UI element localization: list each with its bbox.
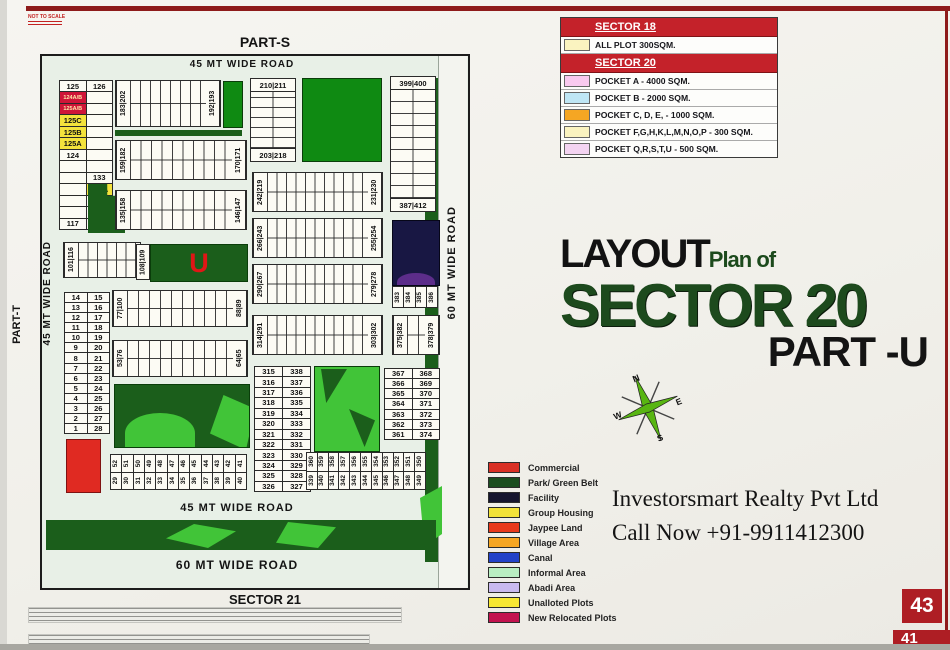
- plot-number: 30: [124, 477, 131, 484]
- company-name: Investorsmart Realty Pvt Ltd: [612, 486, 878, 512]
- legend-item-label: Informal Area: [528, 568, 586, 578]
- plot-number-cell: 19: [87, 333, 110, 342]
- plot-number-cell: 28: [87, 424, 110, 433]
- plot-number-cell: 352: [394, 453, 404, 471]
- legend-color-swatch: [488, 552, 520, 563]
- plot-pair-row: 125B: [60, 126, 112, 137]
- plot-number-cell: 42: [224, 455, 234, 472]
- strip-314-right-label: 303|302: [368, 316, 382, 354]
- plot-column: 4140: [235, 455, 246, 489]
- legend-item: Informal Area: [488, 565, 638, 580]
- plot-number-cell: 342: [339, 471, 349, 490]
- plot-number-cell: 322: [255, 440, 282, 449]
- plot-cells: [407, 316, 425, 354]
- plot-number: 33: [158, 477, 165, 484]
- plot-number-cell: 126: [86, 81, 113, 91]
- plot-cells: [130, 81, 206, 126]
- plot-number-cell: 125A: [60, 138, 86, 148]
- plot-cells: [267, 219, 368, 257]
- plot-number-cell: 133: [86, 173, 113, 183]
- legend-item-label: Canal: [528, 553, 553, 563]
- plot-number-cell: 344: [361, 471, 371, 490]
- plot-pair-row: 920: [65, 342, 109, 352]
- facility-accent: [397, 273, 435, 286]
- plot-number-cell: 320: [255, 419, 282, 428]
- plot-column: 4536: [189, 455, 200, 489]
- facility-block: [392, 220, 440, 286]
- part-s-label: PART-S: [205, 34, 325, 50]
- plot-pair-row: 821: [65, 352, 109, 362]
- plot-number-cell: 368: [412, 369, 440, 378]
- road-45-bottom-label: 45 MT WIDE ROAD: [72, 502, 402, 514]
- plot-number: 342: [341, 475, 348, 486]
- plot-pair-row: 326327: [255, 481, 310, 491]
- watermark-shape: [210, 395, 250, 448]
- strip-314-left-label: 314|291: [253, 316, 267, 354]
- plot-number-cell: 124A/B: [60, 92, 86, 102]
- plot-column: 4833: [155, 455, 166, 489]
- plot-number-cell: [60, 207, 86, 217]
- strip-135-left-label: 135|158: [116, 191, 130, 229]
- plot-column: 359340: [317, 453, 328, 489]
- plot-number-cell: 354: [372, 453, 382, 471]
- plot-column: 4734: [167, 455, 178, 489]
- plot-strip-219-242: 242|219 231|230: [252, 172, 383, 212]
- plot-number: 45: [192, 460, 199, 467]
- plot-number: 46: [181, 460, 188, 467]
- plot-number: 43: [215, 460, 222, 467]
- plot-number-cell: 29: [111, 472, 121, 490]
- plot-number-cell: 46: [179, 455, 189, 472]
- plot-number-cell: 31: [134, 472, 144, 490]
- legend-color-swatch: [488, 567, 520, 578]
- page-number: 43: [910, 594, 933, 618]
- strip-53-left-label: 53|76: [113, 341, 127, 376]
- block-210-bottom-label: 203|218: [251, 148, 295, 161]
- plot-number: 356: [352, 456, 359, 467]
- plot-number-cell: 323: [255, 450, 282, 459]
- plot-column: 5031: [133, 455, 144, 489]
- plot-pair-row: 361374: [385, 429, 439, 439]
- plot-number-cell: 25: [87, 394, 110, 403]
- plot-number: 359: [319, 456, 326, 467]
- plot-strip-159-182: 159|182 170|171: [115, 140, 247, 180]
- plot-strip-29-52: 5229513050314932483347344635453644374338…: [110, 454, 247, 490]
- plot-number: 51: [124, 460, 131, 467]
- plot-number: 39: [226, 477, 233, 484]
- plot-number-cell: 364: [385, 399, 412, 408]
- plot-number-cell: 333: [282, 419, 310, 428]
- plot-number-cell: 13: [65, 303, 87, 312]
- plot-block-203-218: 210|211 203|218: [250, 78, 296, 162]
- plot-cells: [267, 265, 368, 303]
- plot-number: 344: [363, 475, 370, 486]
- plot-number-cell: 318: [255, 398, 282, 407]
- legend-item-label: Park/ Green Belt: [528, 478, 598, 488]
- plot-number-cell: 27: [87, 414, 110, 423]
- legend-item: POCKET A - 4000 SQM.: [561, 73, 777, 90]
- plot-pair-row: 317336: [255, 387, 310, 397]
- plot-pair-row: 320333: [255, 418, 310, 428]
- plot-pair-row: 325328: [255, 470, 310, 480]
- road-45-left-label: 45 MT WIDE ROAD: [43, 241, 53, 345]
- plot-number-cell: 370: [412, 389, 440, 398]
- plot-number: 34: [170, 477, 177, 484]
- plot-number-cell: 317: [255, 388, 282, 397]
- plot-number: 32: [147, 477, 154, 484]
- plot-column: 353346: [382, 453, 393, 489]
- plot-pair-row: 125C: [60, 114, 112, 125]
- plot-number-cell: 373: [412, 420, 440, 429]
- plot-number: 36: [192, 477, 199, 484]
- legend-item: Commercial: [488, 460, 638, 475]
- plot-number-cell: 347: [394, 471, 404, 490]
- legend-color-swatch: [488, 612, 520, 623]
- watermark-shape: [321, 369, 347, 403]
- plot-number-cell: 372: [412, 410, 440, 419]
- legend-item-label: Abadi Area: [528, 583, 575, 593]
- plot-number-cell: [86, 138, 113, 148]
- plot-number-cell: 350: [415, 453, 425, 471]
- plot-number-cell: 357: [339, 453, 349, 471]
- plot-pair-row: 326: [65, 403, 109, 413]
- legend-color-swatch: [488, 522, 520, 533]
- plot-number-cell: 369: [412, 379, 440, 388]
- plot-number-cell: 15: [87, 293, 110, 302]
- plot-number: 347: [395, 475, 402, 486]
- park-green-belt-block: [114, 384, 250, 448]
- plot-pair-row: 322331: [255, 439, 310, 449]
- plot-number-cell: 32: [145, 472, 155, 490]
- plot-number-cell: 316: [255, 377, 282, 386]
- legend-section-header: SECTOR 20: [561, 54, 777, 73]
- title-plan-of: Plan of: [709, 247, 775, 272]
- plot-number-cell: 2: [65, 414, 87, 423]
- plot-column: 358341: [328, 453, 339, 489]
- plot-number: 29: [113, 477, 120, 484]
- plot-strip-243-266: 266|243 255|254: [252, 218, 383, 258]
- plot-block-387-412: 399|400 387|412: [390, 76, 436, 212]
- plot-number-cell: 10: [65, 333, 87, 342]
- plot-number-cell: 38: [213, 472, 223, 490]
- legend-item-label: Group Housing: [528, 508, 594, 518]
- plot-number-cell: 30: [122, 472, 132, 490]
- plot-number-cell: 351: [404, 453, 414, 471]
- strip-242-right-label: 231|230: [368, 173, 382, 211]
- plot-pair-row: 364371: [385, 398, 439, 408]
- legend-item-label: POCKET B - 2000 SQM.: [595, 93, 691, 103]
- plot-number-cell: 16: [87, 303, 110, 312]
- strip-77-right-label: 88|89: [233, 291, 247, 326]
- plot-column: 354345: [371, 453, 382, 489]
- plot-number-cell: 49: [145, 455, 155, 472]
- legend-item: Abadi Area: [488, 580, 638, 595]
- road-45-top-label: 45 MT WIDE ROAD: [82, 59, 402, 70]
- strip-290-right-label: 279|278: [368, 265, 382, 303]
- legend-color-swatch: [488, 537, 520, 548]
- plot-number-cell: [60, 184, 86, 194]
- plot-cells: [251, 92, 295, 148]
- legend-item-label: Jaypee Land: [528, 523, 583, 533]
- plot-pair-row: 316337: [255, 376, 310, 386]
- compass-n: N: [631, 373, 641, 385]
- plot-block-1-28: 1415131612171118101992082172262352442532…: [64, 292, 110, 434]
- plot-column: 352347: [393, 453, 404, 489]
- plot-block-315-338: 3153383163373173363183353193343203333213…: [254, 366, 311, 492]
- plot-number: 343: [352, 475, 359, 486]
- plot-number-cell: 36: [190, 472, 200, 490]
- plot-number-cell: 340: [318, 471, 328, 490]
- plot-number: 348: [406, 475, 413, 486]
- legend-color-swatch: [564, 39, 590, 51]
- plot-number: 41: [238, 460, 245, 467]
- plot-number-cell: 335: [282, 398, 310, 407]
- plot-pair-row: 133: [60, 172, 112, 183]
- plot-cells: [391, 90, 435, 198]
- plot-number-cell: 40: [236, 472, 246, 490]
- plot-number: 340: [319, 475, 326, 486]
- strip-183-left-label: 183|202: [116, 81, 130, 126]
- block-210-top-label: 210|211: [251, 79, 295, 92]
- plot-number-cell: 319: [255, 409, 282, 418]
- plot-number-cell: 12: [65, 313, 87, 322]
- plot-pair-row: 125A: [60, 137, 112, 148]
- plot-pair-row: 321332: [255, 429, 310, 439]
- legend-item-label: Commercial: [528, 463, 580, 473]
- strip-135-right-label: 146|147: [232, 191, 246, 229]
- plot-pair-row: 125A/B: [60, 103, 112, 114]
- plot-number-cell: 337: [282, 377, 310, 386]
- plot-column: 4635: [178, 455, 189, 489]
- legend-item-label: Unalloted Plots: [528, 598, 594, 608]
- plot-number-cell: 48: [156, 455, 166, 472]
- plot-number-cell: 51: [122, 455, 132, 472]
- plot-cells: [267, 173, 368, 211]
- plot-block-375-382: 375|382 378|379: [392, 315, 440, 355]
- legend-item-label: POCKET F,G,H,K,L,M,N,O,P - 300 SQM.: [595, 127, 753, 137]
- plot-number-cell: 18: [87, 323, 110, 332]
- plot-number: 357: [341, 456, 348, 467]
- plot-pair-row: 128: [65, 423, 109, 433]
- strip-183-right-label: 192|193: [206, 81, 220, 126]
- not-to-scale-text: NOT TO SCALE: [28, 14, 65, 20]
- plot-number-cell: 125: [60, 81, 86, 91]
- plot-number-cell: [60, 161, 86, 171]
- right-road: 60 MT WIDE ROAD: [438, 56, 467, 588]
- plot-strip-135-158: 135|158 146|147: [115, 190, 247, 230]
- watermark-shape: [166, 524, 236, 548]
- plot-number-cell: 45: [190, 455, 200, 472]
- plot-number-cell: 47: [168, 455, 178, 472]
- strip-290-left-label: 290|267: [253, 265, 267, 303]
- plot-cells: [267, 316, 368, 354]
- plot-number-cell: 4: [65, 394, 87, 403]
- plot-number-cell: 22: [87, 364, 110, 373]
- plot-cells: [130, 191, 232, 229]
- plot-pair-row: 1118: [65, 322, 109, 332]
- plot-number-cell: 5: [65, 384, 87, 393]
- plot-number-cell: 23: [87, 374, 110, 383]
- legend-color-swatch: [564, 109, 590, 121]
- plot-number-cell: 35: [179, 472, 189, 490]
- plot-number-cell: 34: [168, 472, 178, 490]
- plot-number-cell: 6: [65, 374, 87, 383]
- plot-number: 47: [170, 460, 177, 467]
- road-60-right-label: 60 MT WIDE ROAD: [447, 206, 458, 319]
- plot-number-cell: 349: [415, 471, 425, 490]
- plot-number-cell: 331: [282, 440, 310, 449]
- legend-item: Canal: [488, 550, 638, 565]
- plot-number-cell: 343: [350, 471, 360, 490]
- plot-column: 4239: [223, 455, 234, 489]
- plot-number-cell: 367: [385, 369, 412, 378]
- plot-number: 48: [158, 460, 165, 467]
- plot-number: 351: [406, 456, 413, 467]
- strip-266-right-label: 255|254: [368, 219, 382, 257]
- plot-number-cell: 125C: [60, 115, 86, 125]
- plot-strip-339-360: 3603393593403583413573423563433553443543…: [306, 452, 426, 490]
- green-square-bottom: [314, 366, 380, 452]
- plot-number-cell: [86, 161, 113, 171]
- plot-number-cell: [86, 115, 113, 125]
- plot-number: 350: [417, 456, 424, 467]
- plot-column: 4932: [144, 455, 155, 489]
- plot-number-cell: 360: [307, 453, 317, 471]
- u-block-label-cell: 108|109: [136, 244, 150, 280]
- plot-number: 354: [374, 456, 381, 467]
- plot-number: 353: [384, 456, 391, 467]
- plot-number: 341: [330, 475, 337, 486]
- plot-pair-row: 124A/B: [60, 91, 112, 102]
- plot-strip-77-100: 77|100 88|89: [112, 290, 248, 327]
- plot-386: 386: [429, 292, 436, 303]
- plot-number-cell: 44: [202, 455, 212, 472]
- plot-cells: [130, 141, 232, 179]
- strip-53-right-label: 64|65: [233, 341, 247, 376]
- plot-number-cell: 326: [255, 482, 282, 491]
- plot-number-cell: 7: [65, 364, 87, 373]
- plot-pair-row: 365370: [385, 388, 439, 398]
- plot-number: 37: [204, 477, 211, 484]
- plot-number: 49: [147, 460, 154, 467]
- plot-strip-267-290: 290|267 279|278: [252, 264, 383, 304]
- legend-section-header: SECTOR 18: [561, 18, 777, 37]
- legend-item: POCKET F,G,H,K,L,M,N,O,P - 300 SQM.: [561, 124, 777, 141]
- plot-number-cell: 365: [385, 389, 412, 398]
- facility-label-cell: 386: [426, 287, 437, 307]
- strip-77-left-label: 77|100: [113, 291, 127, 326]
- plot-pair-row: 366369: [385, 378, 439, 388]
- commercial-block: [66, 439, 101, 493]
- page-number-badge: 43: [902, 589, 942, 623]
- plot-column: 356343: [349, 453, 360, 489]
- plot-number-cell: 325: [255, 471, 282, 480]
- plot-number-cell: 374: [412, 430, 440, 439]
- plot-pair-row: 1316: [65, 302, 109, 312]
- plot-pair-row: 1217: [65, 312, 109, 322]
- plot-number-cell: 3: [65, 404, 87, 413]
- plot-number-cell: 125B: [60, 127, 86, 137]
- plot-number: 31: [136, 477, 143, 484]
- facility-label-cell: 384: [403, 287, 414, 307]
- green-plot-cell: [223, 81, 243, 128]
- plot-385: 385: [417, 292, 424, 303]
- plot-pair-row: 425: [65, 393, 109, 403]
- plot-number: 360: [309, 456, 316, 467]
- map-sheet: 45 MT WIDE ROAD 45 MT WIDE ROAD 60 MT WI…: [40, 54, 470, 590]
- plot-number-cell: 321: [255, 430, 282, 439]
- plot-column: 4437: [201, 455, 212, 489]
- plot-number-cell: 14: [65, 293, 87, 302]
- plot-number: 38: [215, 477, 222, 484]
- plot-number-cell: 39: [224, 472, 234, 490]
- sector-21-label: SECTOR 21: [200, 592, 330, 607]
- compass-e: E: [674, 396, 683, 408]
- plot-column: 351348: [403, 453, 414, 489]
- plot-number-cell: 361: [385, 430, 412, 439]
- plot-number-cell: 8: [65, 353, 87, 362]
- plot-number-cell: 24: [87, 384, 110, 393]
- bottom-scan-edge: [0, 644, 950, 650]
- plot-number: 50: [136, 460, 143, 467]
- plot-number-cell: 52: [111, 455, 121, 472]
- plot-pair-row: 362373: [385, 419, 439, 429]
- plot-pair-row: 722: [65, 363, 109, 373]
- plot-number-cell: [60, 196, 86, 206]
- plot-number-cell: 1: [65, 424, 87, 433]
- plot-number-cell: 353: [383, 453, 393, 471]
- green-divider-bar: [115, 130, 242, 136]
- plot-number-cell: 324: [255, 461, 282, 470]
- plot-pair-row: 324329: [255, 460, 310, 470]
- plot-number-cell: 9: [65, 343, 87, 352]
- plot-number-cell: 125A/B: [60, 104, 86, 114]
- plot-pair-row: 363372: [385, 409, 439, 419]
- plot-number-cell: 50: [134, 455, 144, 472]
- plot-number-cell: 348: [404, 471, 414, 490]
- plot-number-cell: 11: [65, 323, 87, 332]
- legend-item: New Relocated Plots: [488, 610, 638, 625]
- legend-item: Unalloted Plots: [488, 595, 638, 610]
- strip-242-left-label: 242|219: [253, 173, 267, 211]
- block-399-bottom-label: 387|412: [391, 198, 435, 211]
- plot-pair-row: 227: [65, 413, 109, 423]
- legend-color-swatch: [564, 143, 590, 155]
- facility-label-cell: 385: [415, 287, 426, 307]
- plot-strip-291-314: 314|291 303|302: [252, 315, 383, 355]
- plot-number: 52: [113, 460, 120, 467]
- plot-pair-row: 524: [65, 383, 109, 393]
- legend-color-swatch: [488, 507, 520, 518]
- right-red-line: [945, 6, 948, 644]
- plot-number-cell: 356: [350, 453, 360, 471]
- legend-color-swatch: [564, 126, 590, 138]
- legend-color-swatch: [488, 462, 520, 473]
- not-to-scale-note: NOT TO SCALE: [28, 14, 65, 20]
- plot-number-cell: 332: [282, 430, 310, 439]
- plot-number-cell: 43: [213, 455, 223, 472]
- u-green-block: U: [150, 244, 248, 282]
- company-phone: Call Now +91-9911412300: [612, 520, 864, 546]
- strip-101-label: 101|116: [64, 243, 78, 277]
- legend-color-swatch: [488, 492, 520, 503]
- legend-item-label: ALL PLOT 300SQM.: [595, 40, 676, 50]
- plot-number: 355: [363, 456, 370, 467]
- strip-159-left-label: 159|182: [116, 141, 130, 179]
- legend-item-label: POCKET Q,R,S,T,U - 500 SQM.: [595, 144, 718, 154]
- green-square-top: [302, 78, 382, 162]
- plot-strip-53-76: 53|76 64|65: [112, 340, 248, 377]
